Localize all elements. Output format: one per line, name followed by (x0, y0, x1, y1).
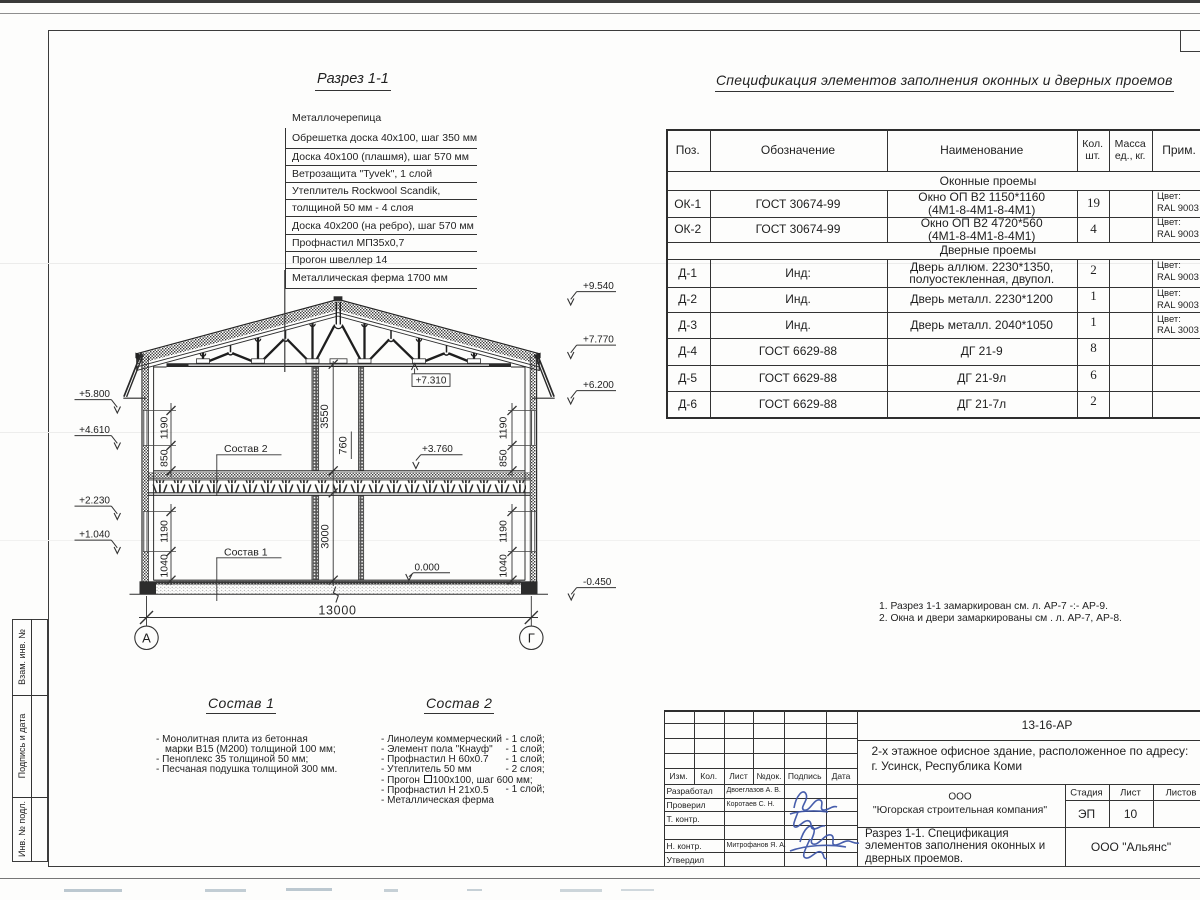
svg-text:1040: 1040 (158, 554, 170, 578)
svg-text:+7.770: +7.770 (583, 335, 614, 346)
svg-text:0.000: 0.000 (415, 563, 440, 574)
svg-text:850: 850 (497, 449, 509, 467)
svg-text:+4.610: +4.610 (79, 425, 110, 436)
svg-text:1190: 1190 (497, 520, 509, 543)
svg-text:+1.040: +1.040 (79, 530, 110, 541)
svg-text:А: А (142, 630, 151, 645)
svg-text:Состав 1: Состав 1 (224, 547, 268, 559)
svg-text:+9.540: +9.540 (583, 281, 614, 292)
svg-text:+2.230: +2.230 (79, 496, 110, 507)
svg-text:3000: 3000 (320, 524, 332, 548)
svg-text:760: 760 (338, 436, 350, 454)
svg-text:850: 850 (158, 449, 170, 467)
svg-text:+6.200: +6.200 (583, 380, 614, 391)
svg-text:Состав 2: Состав 2 (224, 443, 268, 455)
svg-text:+7.310: +7.310 (416, 375, 447, 386)
svg-text:Г: Г (528, 630, 535, 645)
svg-text:+5.800: +5.800 (79, 389, 110, 400)
svg-text:1190: 1190 (497, 417, 509, 440)
svg-text:3550: 3550 (319, 404, 331, 428)
svg-text:13000: 13000 (318, 604, 356, 618)
svg-text:+3.760: +3.760 (422, 444, 453, 455)
svg-text:1040: 1040 (497, 554, 509, 578)
svg-text:1190: 1190 (158, 520, 170, 543)
svg-text:1190: 1190 (158, 417, 170, 440)
svg-text:-0.450: -0.450 (583, 577, 612, 588)
